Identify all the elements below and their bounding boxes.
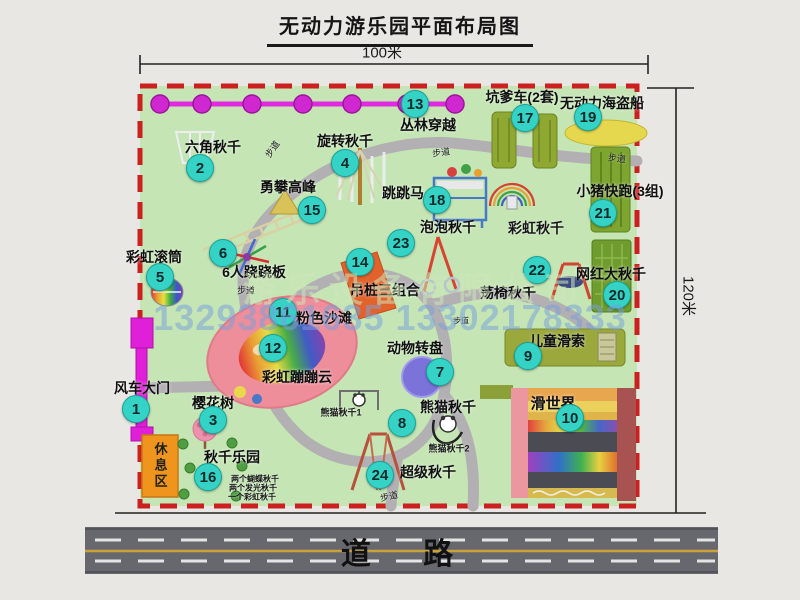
- zipline-shape: [505, 329, 625, 366]
- beach-deco-yellow: [234, 386, 246, 398]
- pirate-ship-shape: [565, 120, 647, 146]
- beach-deco-blue: [252, 394, 262, 404]
- rainbow-roller-icon: [151, 278, 183, 306]
- height-dimension-label: 120米: [679, 276, 700, 316]
- rest-area-label: 休息区: [151, 442, 170, 490]
- big-swing-shape: [592, 240, 631, 312]
- animal-carousel-shape: [402, 357, 442, 397]
- width-dimension-label: 100米: [362, 42, 402, 63]
- road-label: 道 路: [341, 529, 475, 573]
- park-layout-screenshot: 无动力游乐园平面布局图 100米 120米: [0, 0, 800, 600]
- piggy-run-shape: [591, 147, 630, 232]
